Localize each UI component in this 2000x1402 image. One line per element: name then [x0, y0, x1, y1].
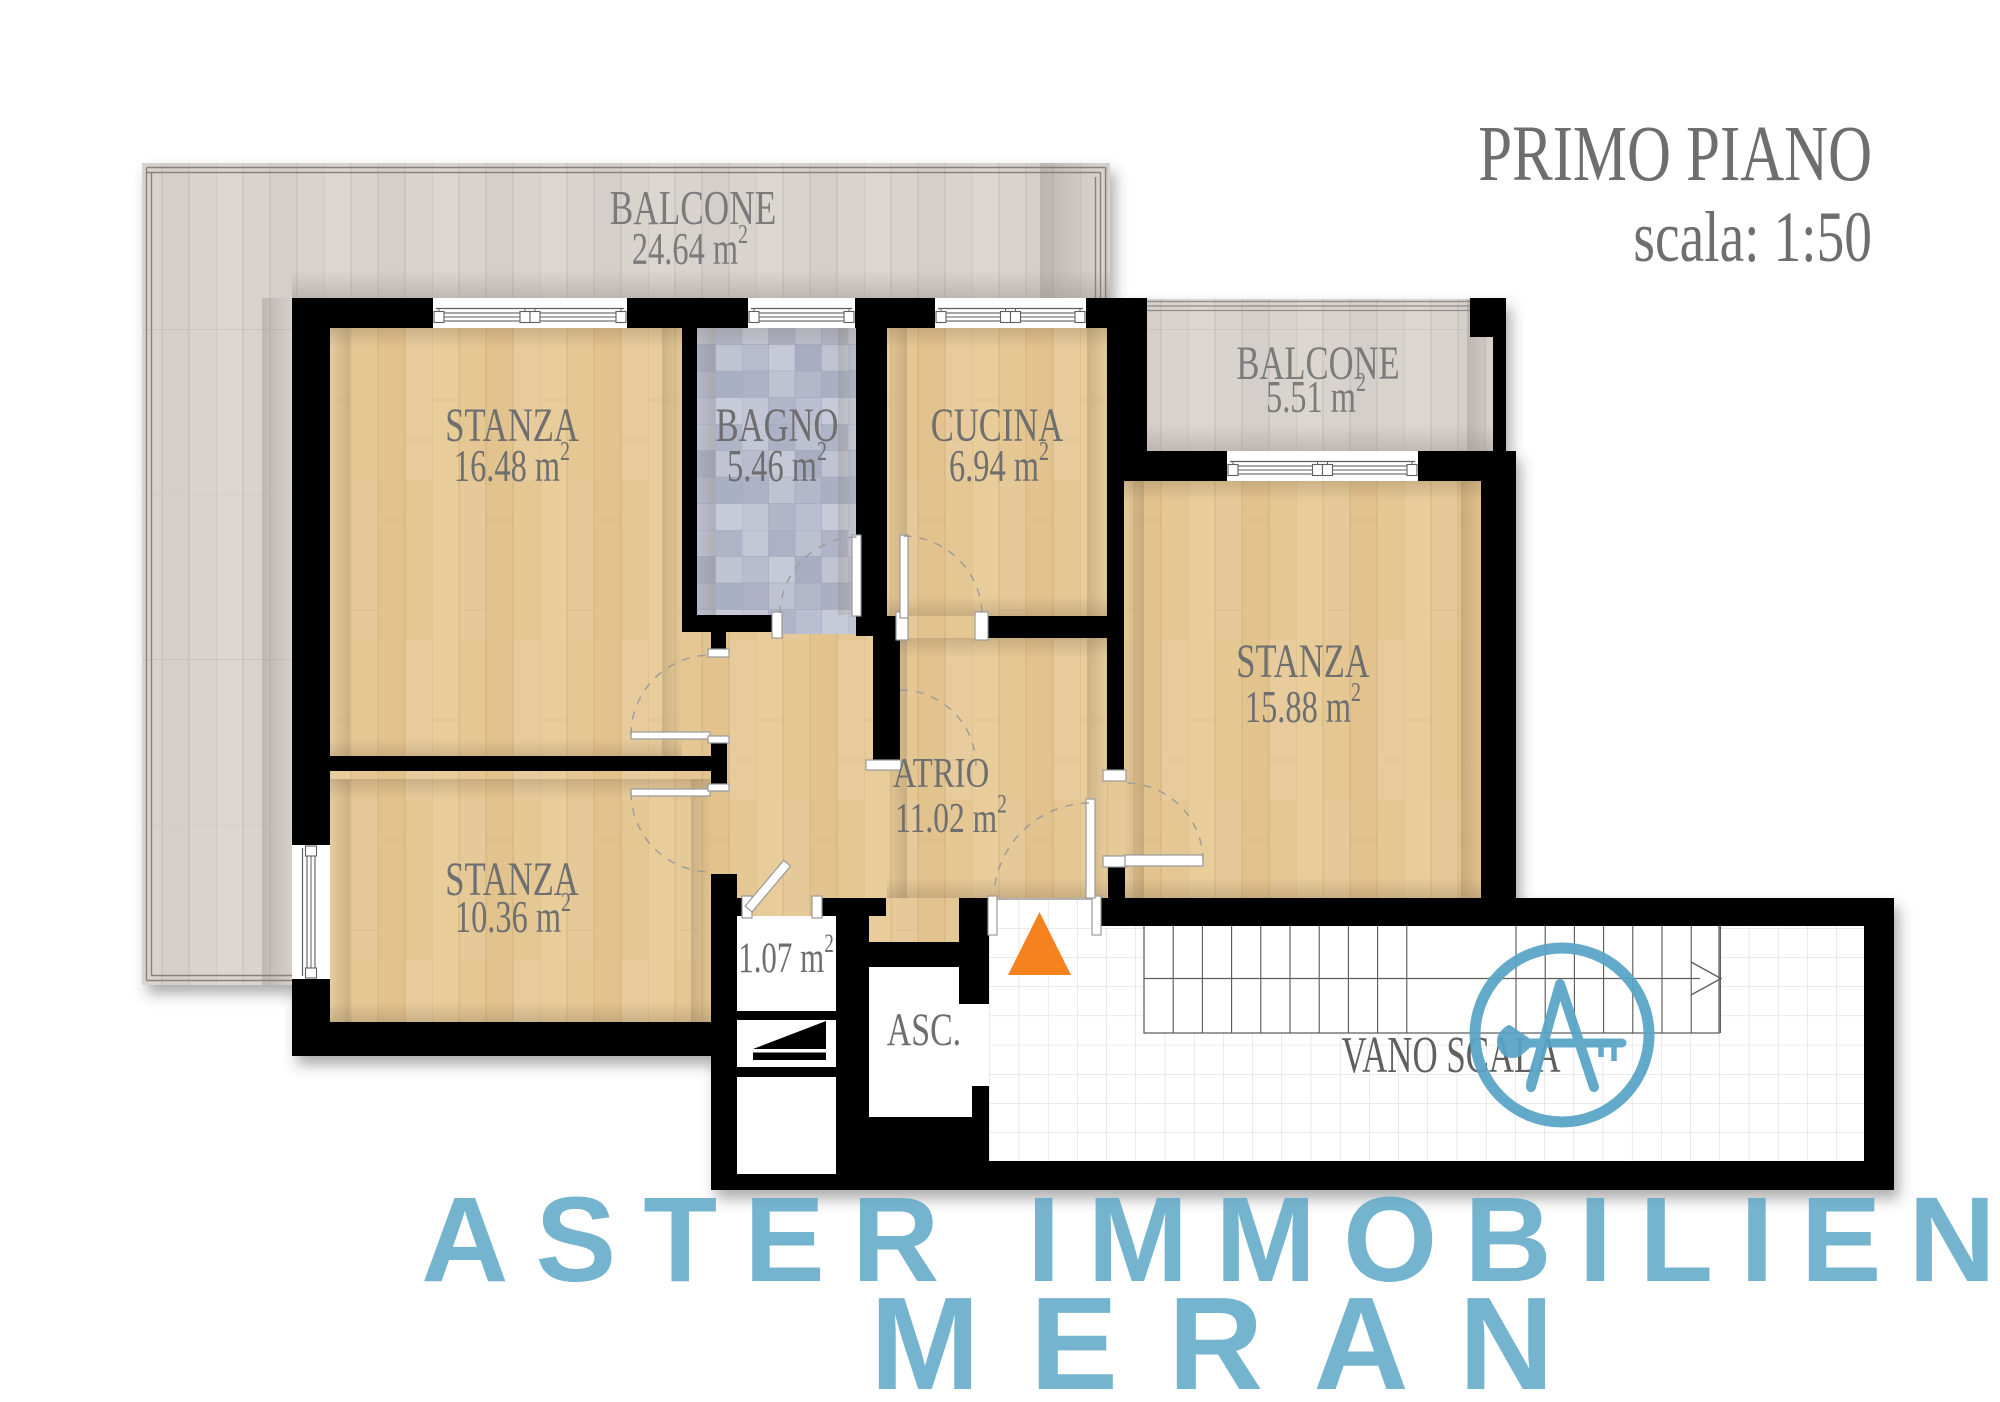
svg-text:ATRIO: ATRIO — [893, 750, 989, 797]
svg-text:ASC.: ASC. — [887, 1004, 961, 1056]
svg-text:5.46 m2: 5.46 m2 — [727, 436, 827, 492]
svg-text:24.64 m2: 24.64 m2 — [632, 219, 748, 275]
svg-text:15.88 m2: 15.88 m2 — [1245, 677, 1361, 733]
svg-text:10.36 m2: 10.36 m2 — [455, 887, 571, 943]
svg-text:PRIMO PIANO: PRIMO PIANO — [1478, 111, 1872, 198]
svg-text:MERAN: MERAN — [870, 1270, 1604, 1402]
svg-text:VANO SCALA: VANO SCALA — [1341, 1026, 1560, 1084]
svg-text:11.02 m2: 11.02 m2 — [895, 789, 1007, 843]
svg-text:6.94 m2: 6.94 m2 — [949, 436, 1049, 492]
svg-text:STANZA: STANZA — [1236, 636, 1370, 689]
svg-text:1.07 m2: 1.07 m2 — [738, 929, 834, 982]
svg-text:16.48 m2: 16.48 m2 — [454, 436, 570, 492]
svg-text:scala: 1:50: scala: 1:50 — [1633, 197, 1872, 277]
svg-text:5.51 m2: 5.51 m2 — [1266, 367, 1366, 423]
